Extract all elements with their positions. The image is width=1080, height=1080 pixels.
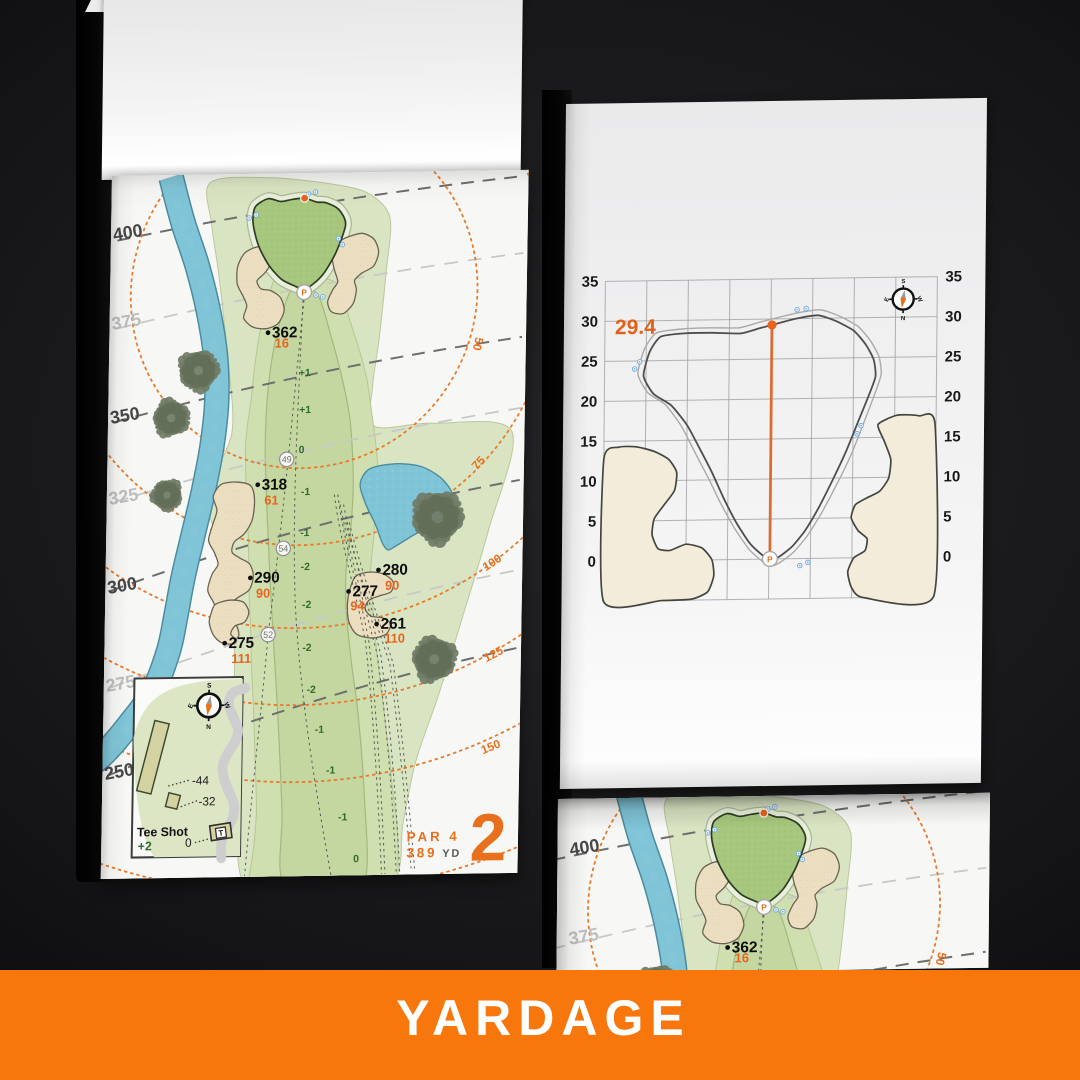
svg-text:30: 30 xyxy=(945,308,962,325)
svg-text:-1: -1 xyxy=(301,487,311,498)
svg-text:35: 35 xyxy=(582,274,599,291)
svg-text:290: 290 xyxy=(254,569,280,587)
svg-text:-1: -1 xyxy=(326,766,336,777)
svg-text:5: 5 xyxy=(943,508,951,525)
svg-text:-2: -2 xyxy=(301,562,311,573)
svg-text:2: 2 xyxy=(469,801,507,876)
svg-text:-2: -2 xyxy=(302,643,312,654)
svg-text:389 YD: 389 YD xyxy=(406,845,461,861)
svg-text:25: 25 xyxy=(581,354,598,371)
svg-text:5: 5 xyxy=(588,514,596,531)
svg-text:52: 52 xyxy=(263,630,273,640)
svg-text:PAR 4: PAR 4 xyxy=(407,829,460,845)
svg-text:111: 111 xyxy=(231,651,251,666)
svg-text:30: 30 xyxy=(581,314,598,331)
svg-text:+1: +1 xyxy=(299,368,311,379)
svg-text:-1: -1 xyxy=(300,528,310,539)
svg-text:49: 49 xyxy=(282,454,292,464)
svg-text:+1: +1 xyxy=(299,405,311,416)
svg-text:20: 20 xyxy=(581,394,598,411)
svg-text:318: 318 xyxy=(262,476,288,494)
svg-text:90: 90 xyxy=(385,578,399,593)
svg-text:94: 94 xyxy=(350,598,365,613)
svg-text:-1: -1 xyxy=(315,725,325,736)
svg-text:110: 110 xyxy=(384,630,405,645)
svg-text:-2: -2 xyxy=(307,685,317,696)
svg-text:-1: -1 xyxy=(338,812,348,823)
svg-text:15: 15 xyxy=(944,428,961,445)
svg-text:54: 54 xyxy=(278,543,288,553)
svg-text:-2: -2 xyxy=(302,600,312,611)
svg-text:+2: +2 xyxy=(138,839,152,853)
svg-text:35: 35 xyxy=(945,268,962,285)
svg-text:-44: -44 xyxy=(192,773,210,787)
svg-text:29.4: 29.4 xyxy=(615,316,656,340)
svg-text:16: 16 xyxy=(275,335,289,350)
svg-text:0: 0 xyxy=(353,854,359,865)
svg-text:-32: -32 xyxy=(198,794,216,808)
svg-text:90: 90 xyxy=(256,585,270,600)
svg-text:15: 15 xyxy=(580,434,597,451)
svg-text:Tee Shot: Tee Shot xyxy=(137,825,188,840)
svg-text:280: 280 xyxy=(382,561,408,579)
svg-text:61: 61 xyxy=(264,492,278,507)
svg-text:10: 10 xyxy=(944,468,961,485)
svg-text:275: 275 xyxy=(228,635,254,653)
svg-text:0: 0 xyxy=(943,548,951,565)
svg-text:10: 10 xyxy=(580,474,597,491)
svg-text:25: 25 xyxy=(945,348,962,365)
svg-text:20: 20 xyxy=(944,388,961,405)
svg-text:0: 0 xyxy=(587,554,595,571)
svg-text:0: 0 xyxy=(299,445,305,456)
